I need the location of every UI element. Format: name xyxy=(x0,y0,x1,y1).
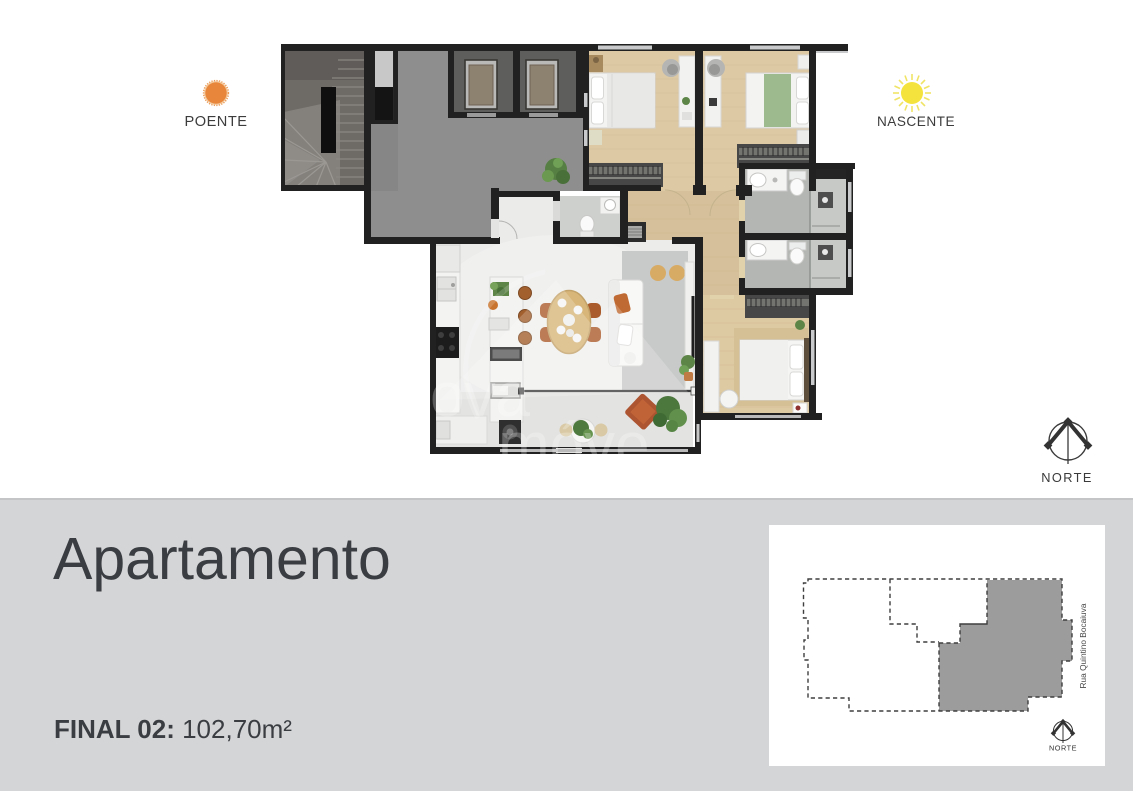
svg-text:Rua Quintino Bocaiuva: Rua Quintino Bocaiuva xyxy=(1078,603,1088,688)
svg-text:POENTE: POENTE xyxy=(184,114,247,130)
svg-text:móve: móve xyxy=(498,411,650,480)
svg-text:NORTE: NORTE xyxy=(1041,470,1093,485)
svg-text:FINAL 02: 102,70m²: FINAL 02: 102,70m² xyxy=(54,714,292,744)
svg-text:NASCENTE: NASCENTE xyxy=(877,114,955,129)
svg-text:NORTE: NORTE xyxy=(1049,744,1077,753)
svg-text:Apartamento: Apartamento xyxy=(53,526,391,592)
